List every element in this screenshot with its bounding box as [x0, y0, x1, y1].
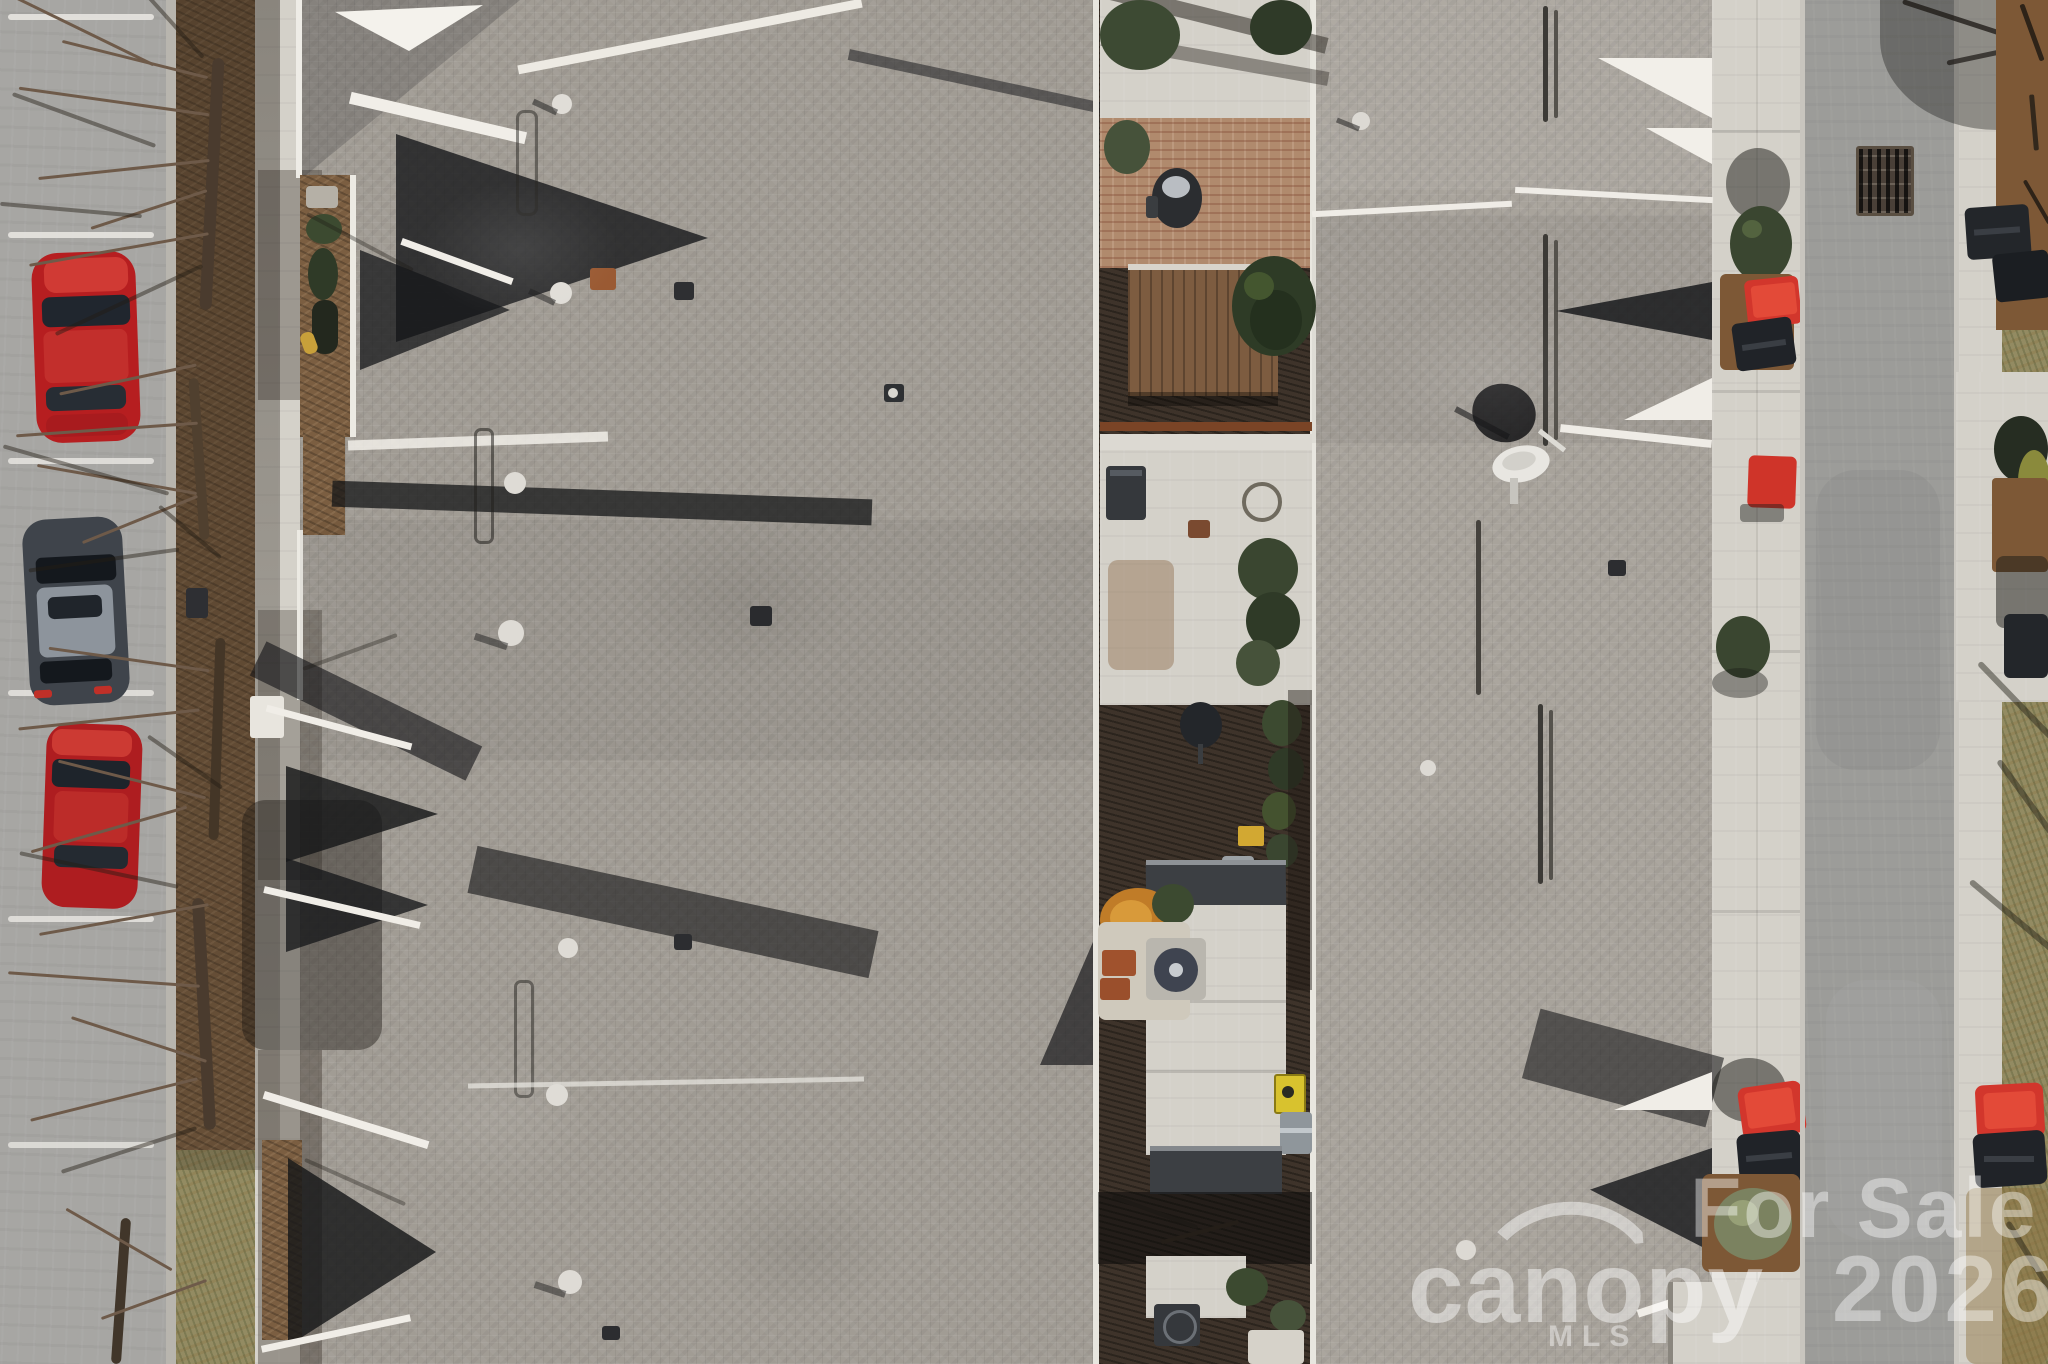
red-bin-lid: [1744, 1087, 1797, 1129]
bin-shadow: [1740, 504, 1784, 522]
gray-suv-rear-window: [39, 658, 112, 684]
gray-suv-sunroof: [47, 595, 102, 620]
roof-mottle: [1380, 300, 1600, 450]
ridge-vent-line: [1476, 520, 1481, 695]
white-utility-box: [250, 696, 284, 738]
yard-sign-glyph: [1282, 1086, 1294, 1098]
courtyard-gutter: [1093, 0, 1099, 1364]
red-car-1-roof: [43, 329, 129, 384]
bush-highlight: [1742, 220, 1762, 238]
hvac-fan-hub: [1169, 963, 1183, 977]
porch-roof-band: [1150, 1148, 1282, 1194]
tree-canopy: [1100, 0, 1180, 70]
sidewalk-bush: [1730, 206, 1792, 282]
roof-mottle: [700, 1180, 900, 1320]
red-trash-bin: [1747, 455, 1797, 509]
walkway-joint: [1146, 1070, 1286, 1073]
brick-pad: [1100, 978, 1130, 1000]
roof-mottle: [620, 520, 860, 680]
greenery: [1270, 1300, 1306, 1332]
gray-suv-taillight: [34, 690, 52, 699]
roof-object-dark: [602, 1326, 620, 1340]
red-car-2-hood: [52, 729, 133, 758]
stepping-stones: [306, 186, 338, 208]
patio-bush: [1238, 538, 1298, 600]
patio-bush: [1236, 640, 1280, 686]
walk-sliver: [1248, 1330, 1304, 1364]
porch-roof-edge: [1146, 860, 1286, 865]
mailbox-post: [186, 588, 208, 618]
ac-unit-top: [1110, 470, 1142, 476]
gray-bin-lid-line: [1280, 1128, 1312, 1133]
dirt-patch: [1108, 560, 1174, 670]
grill-shelf: [1146, 196, 1158, 218]
yellow-crate: [1238, 826, 1264, 846]
roof-vent-cap: [888, 388, 898, 398]
tree-canopy: [1250, 0, 1312, 55]
left-roof-gutter: [296, 0, 302, 178]
parking-line: [8, 458, 154, 464]
gray-suv-taillight: [94, 686, 112, 695]
planter: [1188, 520, 1210, 538]
roof-vent-pipe: [504, 472, 526, 494]
dish-mount: [1510, 478, 1518, 504]
red-bin-lid: [1983, 1091, 2037, 1130]
garden-bush: [308, 248, 338, 300]
aerial-real-estate-photo: canopy MLS For Sale 2026: [0, 0, 2048, 1364]
roof-object-dark: [1608, 560, 1626, 576]
fascia-rust: [1100, 422, 1312, 431]
parking-line: [8, 232, 154, 238]
sidewalk-joint: [1712, 910, 1804, 913]
ridge-seam-box: [474, 428, 494, 544]
white-fence: [1100, 434, 1312, 450]
porch-trim: [350, 175, 356, 437]
right-building-roof: [1312, 0, 1712, 1364]
storm-drain-grate: [1856, 146, 1914, 216]
roof-vent-dark: [674, 282, 694, 300]
watermark-year: 2026: [1832, 1242, 2048, 1336]
parking-line: [8, 14, 154, 20]
red-car-1-windshield: [42, 294, 131, 327]
watermark-mls-label: MLS: [1548, 1322, 1638, 1352]
street-curb-left: [1800, 0, 1805, 1364]
bush-shadow: [1712, 668, 1768, 698]
porch-roof-edge: [1150, 1146, 1282, 1151]
roof-mottle: [420, 180, 620, 320]
deck-shadow: [1128, 392, 1278, 406]
green-bush: [1152, 884, 1194, 924]
ridge-vent-line: [1543, 6, 1548, 122]
small-tree-stem: [1198, 744, 1203, 764]
roof-mottle: [1340, 800, 1580, 960]
roof-mottle: [380, 1040, 600, 1190]
black-trash-bin: [1992, 249, 2048, 303]
black-trash-bin: [2004, 614, 2048, 678]
red-bin-lid: [1750, 282, 1797, 318]
roof-object-dark: [674, 934, 692, 950]
right-roof-tint-top: [1312, 0, 1712, 190]
greenery: [1226, 1268, 1268, 1306]
sidewalk-joint: [1712, 390, 1804, 393]
roof-vent-pipe: [558, 938, 578, 958]
sidewalk-joint: [1712, 130, 1804, 133]
brick-pad: [1102, 950, 1136, 976]
grill-lid: [1162, 176, 1190, 198]
magnolia-highlight: [1244, 272, 1274, 300]
gray-trash-bin: [1280, 1112, 1312, 1154]
ridge-vent-line: [1554, 10, 1558, 118]
roof-vent-pipe: [1420, 760, 1436, 776]
paver-circle: [1242, 482, 1282, 522]
fence-shadow: [1288, 690, 1312, 990]
patio-bush: [1104, 120, 1150, 174]
street-wear-patch: [1816, 470, 1940, 770]
ac-fan-ring: [1163, 1310, 1197, 1344]
